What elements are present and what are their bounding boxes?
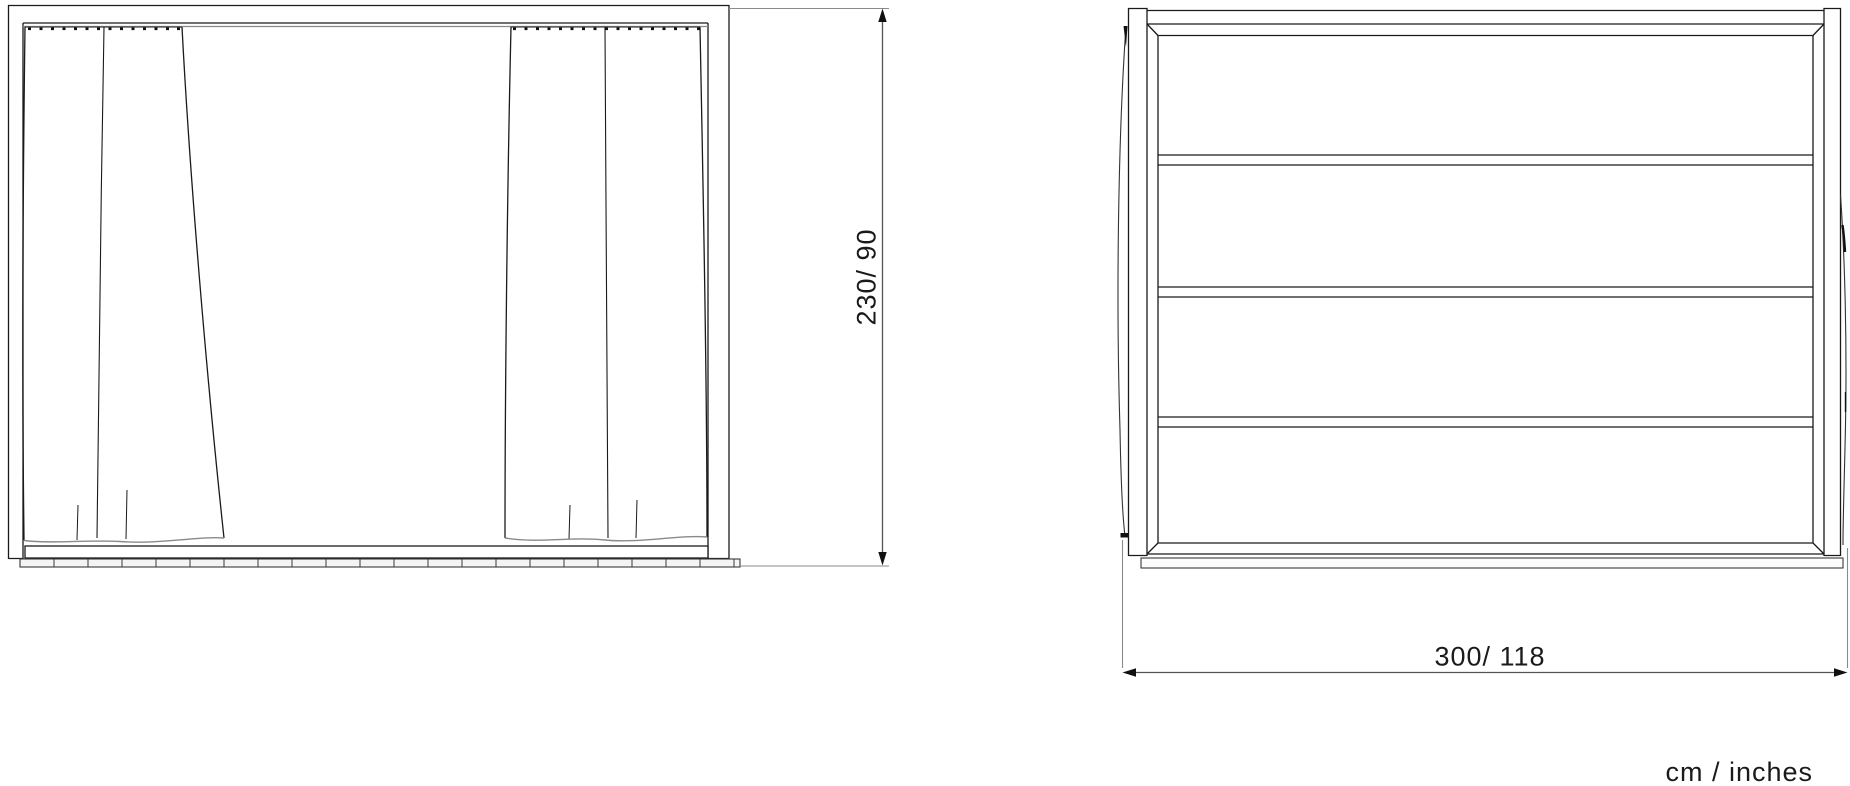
front-bottom-rail [25,546,708,558]
drawing-sheet: 230/ 90 300/ 118 cm / inches [0,0,1850,786]
height-arrow-bottom [878,552,886,566]
back-view [1118,9,1846,569]
floor-track [20,559,740,567]
curtain-edge-right [1841,195,1846,545]
back-left-post [1129,9,1148,557]
curtain-panel-left [23,27,224,544]
curtain-panel-right [505,27,707,542]
units-label: cm / inches [1665,759,1813,786]
technical-drawing [0,0,1850,786]
back-top-rail [1147,11,1824,36]
curtain-edge-left [1118,26,1128,538]
back-right-post [1824,9,1841,557]
front-view [9,6,741,568]
height-arrow-top [878,9,886,23]
width-dimension-label: 300/ 118 [1434,644,1545,671]
curtain-left-fill [24,27,224,544]
floor-track-segments [54,559,734,567]
back-panel-separators [1158,155,1813,427]
width-arrow-left [1123,668,1137,676]
height-dimension-label: 230/ 90 [854,228,881,325]
width-arrow-right [1834,668,1848,676]
back-base-strip [1141,558,1843,568]
back-bottom-rail [1147,543,1824,554]
back-inner-frame [1158,36,1813,544]
